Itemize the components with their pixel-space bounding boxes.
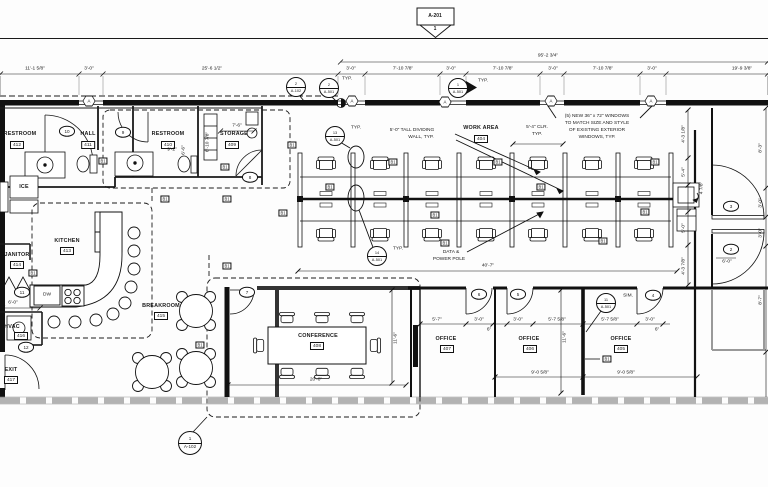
- wall-type-tag: B1: [287, 142, 296, 149]
- dim-label: 3'-0": [759, 228, 764, 238]
- wall-type-tag: B1: [160, 196, 169, 203]
- callout-detail: 14 A-501: [367, 246, 387, 266]
- note-new-windows: OF EXISTING EXTERIOR: [569, 128, 625, 134]
- dim-label: 7'-6": [232, 124, 242, 129]
- dim-overall-label: 95'-2 3/4": [538, 54, 558, 59]
- dim-label: 3'-0": [548, 67, 558, 72]
- dim-label: 6": [655, 328, 659, 333]
- callout-sheet: A-501: [326, 137, 344, 142]
- window-tag-letter: A: [83, 96, 94, 105]
- dishwasher-label: DW: [43, 293, 51, 298]
- dim-label: 19'-9 3/8": [732, 67, 752, 72]
- dim-label: 20'-0": [310, 378, 322, 383]
- dim-label: 3'-0": [645, 318, 655, 323]
- door-tag: 6: [471, 289, 487, 300]
- callout-detail: 2 A-501: [319, 78, 339, 98]
- wall-type-tag: B1: [278, 210, 287, 217]
- room-label-exit-417: EXIT: [5, 367, 18, 373]
- callout-sheet: A-501: [368, 257, 386, 262]
- room-label-office-406: OFFICE: [519, 336, 540, 342]
- room-number-tag: 408: [310, 342, 324, 350]
- dim-label: 11'-6": [394, 332, 399, 344]
- ice-machine-label: ICE: [19, 184, 29, 190]
- door-tag: 5: [510, 289, 526, 300]
- floor-plan-sheet: A-201 1 11'-1 5/8" 3'-0" 25'-6 1/2" 3'-0…: [0, 0, 768, 487]
- room-number-tag: 412: [10, 141, 24, 149]
- wall-type-tag: B1: [598, 238, 607, 245]
- wall-type-tag: B1: [430, 212, 439, 219]
- floor-plan-linework: [0, 0, 768, 487]
- room-label-hvac-416: HVAC: [4, 324, 20, 330]
- room-label-office-405: OFFICE: [611, 336, 632, 342]
- dim-label: 5'-4": [682, 167, 687, 177]
- wall-type-tag: B1: [650, 159, 659, 166]
- dim-label: 5'-7 5/8": [601, 318, 619, 323]
- dim-label: 40'-7": [482, 264, 494, 269]
- wall-type-tag: B1: [536, 184, 545, 191]
- dim-label: 6": [487, 328, 491, 333]
- wall-type-tag: B1: [493, 159, 502, 166]
- dim-label: 3'-0": [346, 67, 356, 72]
- callout-detail: 13 A-501: [325, 126, 345, 146]
- dim-label: 8'-3": [759, 143, 764, 153]
- callout-detail: 11 A-501: [596, 293, 616, 313]
- room-label-janitor-414: JANITOR: [5, 252, 30, 258]
- room-number-tag: 411: [81, 141, 95, 149]
- dim-label: 3'-0": [647, 67, 657, 72]
- door-tag: 8: [242, 172, 258, 183]
- wall-type-tag: B1: [325, 184, 334, 191]
- pennant-number-text: 1: [434, 26, 437, 32]
- note-dividing-wall: 5'-0" TALL DIVIDING: [390, 128, 434, 134]
- dim-label: 8'-7": [759, 295, 764, 305]
- room-number-tag: 416: [14, 332, 28, 340]
- wall-type-tag: B1: [388, 159, 397, 166]
- room-number-tag: 414: [10, 261, 24, 269]
- dim-label: 11'-6": [563, 331, 568, 343]
- sim-label: SIM.: [623, 294, 633, 299]
- dim-label: 5'-7": [432, 318, 442, 323]
- typ-label: TYP.: [478, 79, 488, 84]
- dim-label: 25'-6 1/2": [202, 67, 222, 72]
- sheet-ref-pennant: A-201: [428, 13, 442, 19]
- room-label-breakroom-415: BREAKROOM: [142, 303, 180, 309]
- dim-label: 3'-0": [84, 67, 94, 72]
- door-tag: 2: [723, 244, 739, 255]
- room-label-restroom-410: RESTROOM: [152, 131, 185, 137]
- door-tag: 3: [723, 201, 739, 212]
- wall-type-tag: B1: [28, 270, 37, 277]
- note-new-windows: TO MATCH SIZE AND STYLE: [565, 121, 629, 127]
- wall-type-tag: B1: [640, 209, 649, 216]
- callout-sheet: A-102: [179, 444, 201, 450]
- typ-label: TYP.: [393, 247, 403, 252]
- room-number-tag: 405: [614, 345, 628, 353]
- dim-label: 9'-2": [167, 148, 177, 153]
- dim-label: 9'-0 5/8": [617, 371, 635, 376]
- room-number-tag: 404: [474, 135, 488, 143]
- dim-label: 3'-0": [474, 318, 484, 323]
- dim-label: 6'-0": [8, 301, 18, 306]
- wall-type-tag: B1: [222, 196, 231, 203]
- room-number-tag: 406: [523, 345, 537, 353]
- room-label-kitchen-413: KITCHEN: [54, 238, 79, 244]
- door-tag: 12: [18, 342, 34, 353]
- window-tag-letter: A: [346, 96, 357, 105]
- dim-label: 9'-0 5/8": [531, 371, 549, 376]
- pennant-number: 1: [434, 26, 437, 32]
- wall-type-tag: B1: [440, 240, 449, 247]
- wall-type-tag: B1: [220, 164, 229, 171]
- room-label-conference-408: CONFERENCE: [298, 333, 338, 339]
- door-tag: 4: [645, 290, 661, 301]
- plan-callout: 1 A-102: [178, 431, 202, 455]
- note-new-windows: WINDOWS, TYP.: [579, 135, 616, 141]
- room-number-tag: 417: [4, 376, 18, 384]
- dim-label: 7'-10 7/8": [393, 67, 413, 72]
- dim-label: 7'-10 7/8": [493, 67, 513, 72]
- dim-label: 11'-1 5/8": [25, 67, 45, 72]
- room-label-storage-409: STORAGE: [220, 131, 248, 137]
- typ-label: TYP.: [342, 77, 352, 82]
- door-tag: 9: [115, 127, 131, 138]
- dim-label: 4 7/8": [700, 182, 705, 194]
- typ-label: TYP.: [351, 126, 361, 131]
- note-new-windows: (5) NEW 36" x 72" WINDOWS: [565, 114, 629, 120]
- room-label-hall-411: HALL: [80, 131, 95, 137]
- callout-sheet: A-501: [449, 89, 467, 94]
- room-label-workarea-404: WORK AREA: [463, 125, 498, 131]
- door-tag: 7: [239, 287, 255, 298]
- room-label-office-407: OFFICE: [436, 336, 457, 342]
- room-number-tag: 413: [60, 247, 74, 255]
- note-clear-width: 5'-4" CLR.: [526, 125, 548, 131]
- dim-label: 6'-6": [182, 145, 187, 155]
- note-dividing-wall: WALL, TYP.: [408, 135, 434, 141]
- wall-type-tag: B1: [195, 342, 204, 349]
- dim-label: 3'-0": [446, 67, 456, 72]
- wall-type-tag: B1: [222, 263, 231, 270]
- callout-sheet: A-501: [320, 89, 338, 94]
- callout-detail: 1 A-501: [448, 78, 468, 98]
- note-data-power-pole: POWER POLE: [433, 257, 465, 263]
- dim-label: 4'-3 7/8": [682, 257, 687, 275]
- door-tag: 11: [14, 287, 30, 298]
- callout-sheet: A-102: [287, 88, 305, 93]
- dim-label: 3'-0": [759, 198, 764, 208]
- note-clear-width: TYP.: [532, 132, 542, 138]
- wall-type-tag: B1: [602, 356, 611, 363]
- window-tag-letter: A: [439, 97, 450, 106]
- pennant-sheet: A-201: [428, 13, 442, 19]
- dim-label: 4'-3 1/8": [682, 125, 687, 143]
- note-data-power-pole: DATA &: [443, 250, 459, 256]
- dim-label: 6'-10 7/8": [206, 132, 211, 152]
- room-number-tag: 407: [440, 345, 454, 353]
- dim-label: 5'-7 5/8": [548, 318, 566, 323]
- window-tag-letter: A: [645, 96, 656, 105]
- room-number-tag: 415: [154, 312, 168, 320]
- dim-label: 5'-0": [682, 223, 687, 233]
- callout-sheet: A-501: [597, 304, 615, 309]
- callout-detail: 2 A-102: [286, 77, 306, 97]
- dim-label: 7'-10 7/8": [593, 67, 613, 72]
- dim-label: 3'-0": [513, 318, 523, 323]
- room-number-tag: 409: [225, 141, 239, 149]
- dim-label: 6'-0": [722, 260, 732, 265]
- wall-type-tag: B1: [98, 158, 107, 165]
- callout-number: 1: [179, 436, 201, 443]
- room-label-restroom-412: RESTROOM: [4, 131, 37, 137]
- window-tag-letter: A: [545, 96, 556, 105]
- door-tag: 10: [59, 126, 75, 137]
